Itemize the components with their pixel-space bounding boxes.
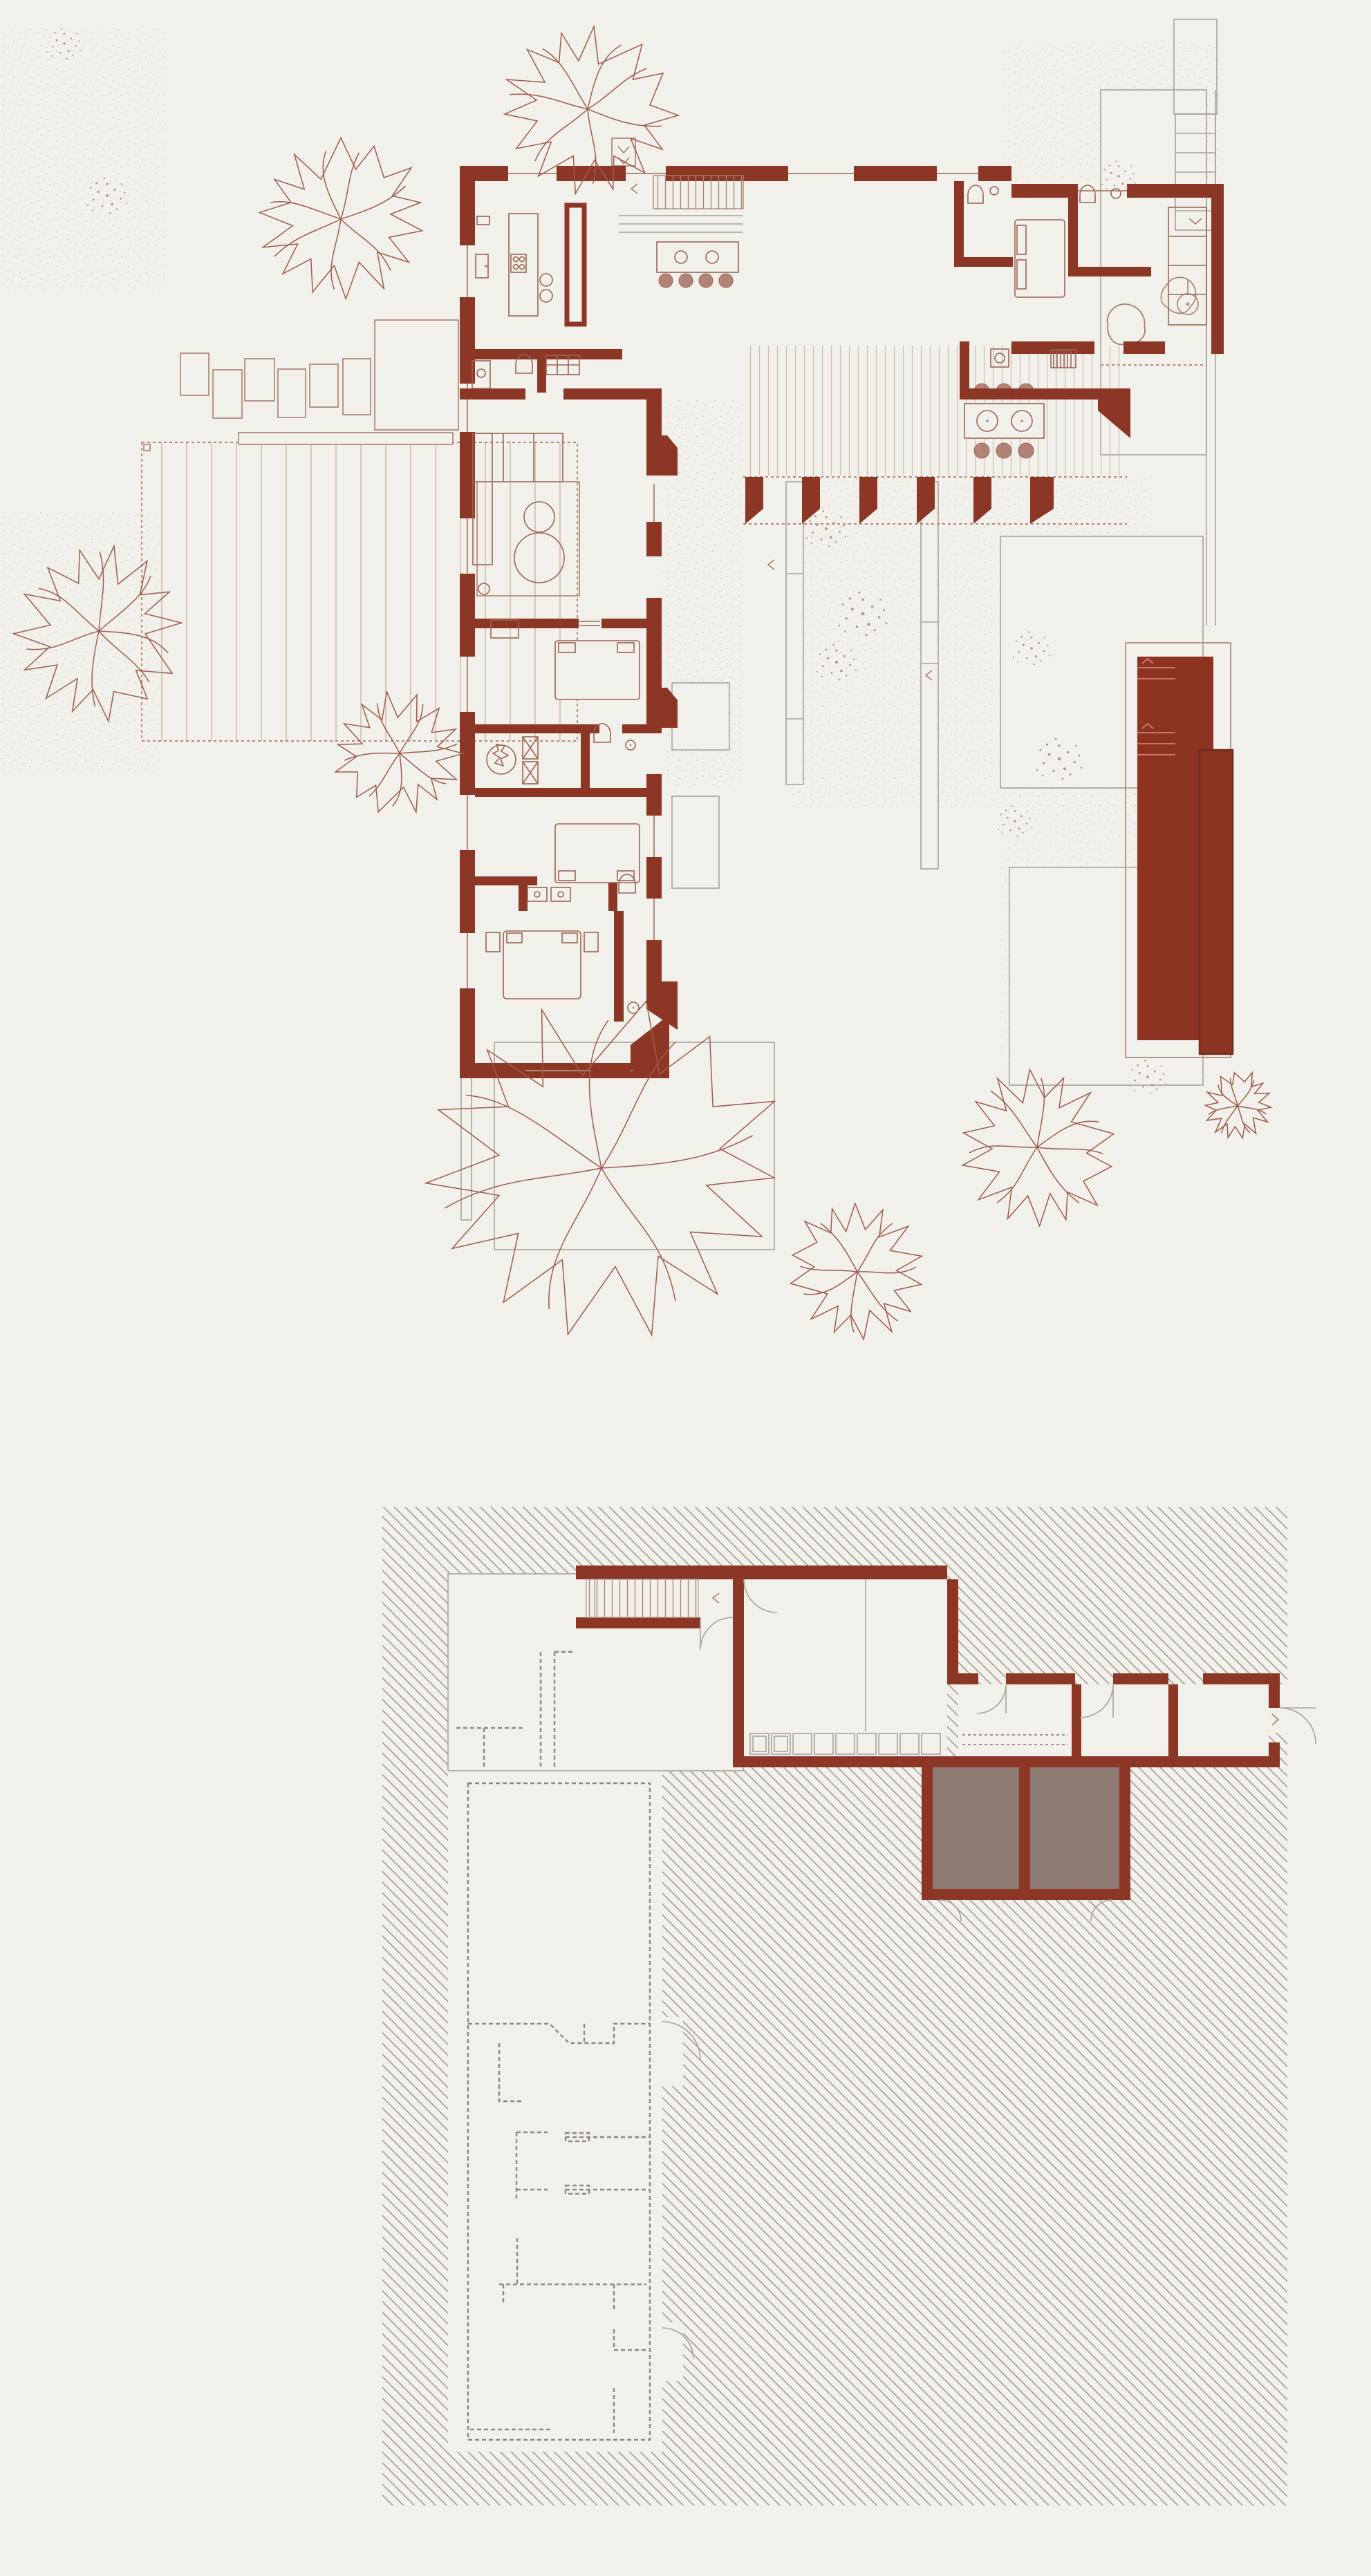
architectural-drawing-sheet [0,0,1371,2576]
basement-floor-plan [382,1507,1316,2506]
hall-wc [968,185,998,203]
dining-table [964,404,1044,438]
cellar-room-1 [933,1767,1019,1889]
bar-counter [657,242,738,288]
bed [503,931,581,999]
interior-stair [619,176,743,232]
timber-deck [142,442,577,741]
tall-cabinet [567,205,584,324]
kitchen [476,205,584,324]
swimming-pool [1126,643,1233,1057]
cellar-rooms [922,1767,1130,1921]
cellar-room-2 [1030,1767,1119,1889]
bed [1015,220,1065,297]
kitchen-sink [540,274,552,286]
walkway [239,433,453,444]
stepping-stone-pavers [180,320,458,430]
bed [555,641,640,699]
pool-lap-lane [1200,750,1233,1054]
floor-plan-canvas [0,0,1371,2576]
ground-floor-site-plan [0,0,1283,1376]
bathroom-north [472,355,579,388]
